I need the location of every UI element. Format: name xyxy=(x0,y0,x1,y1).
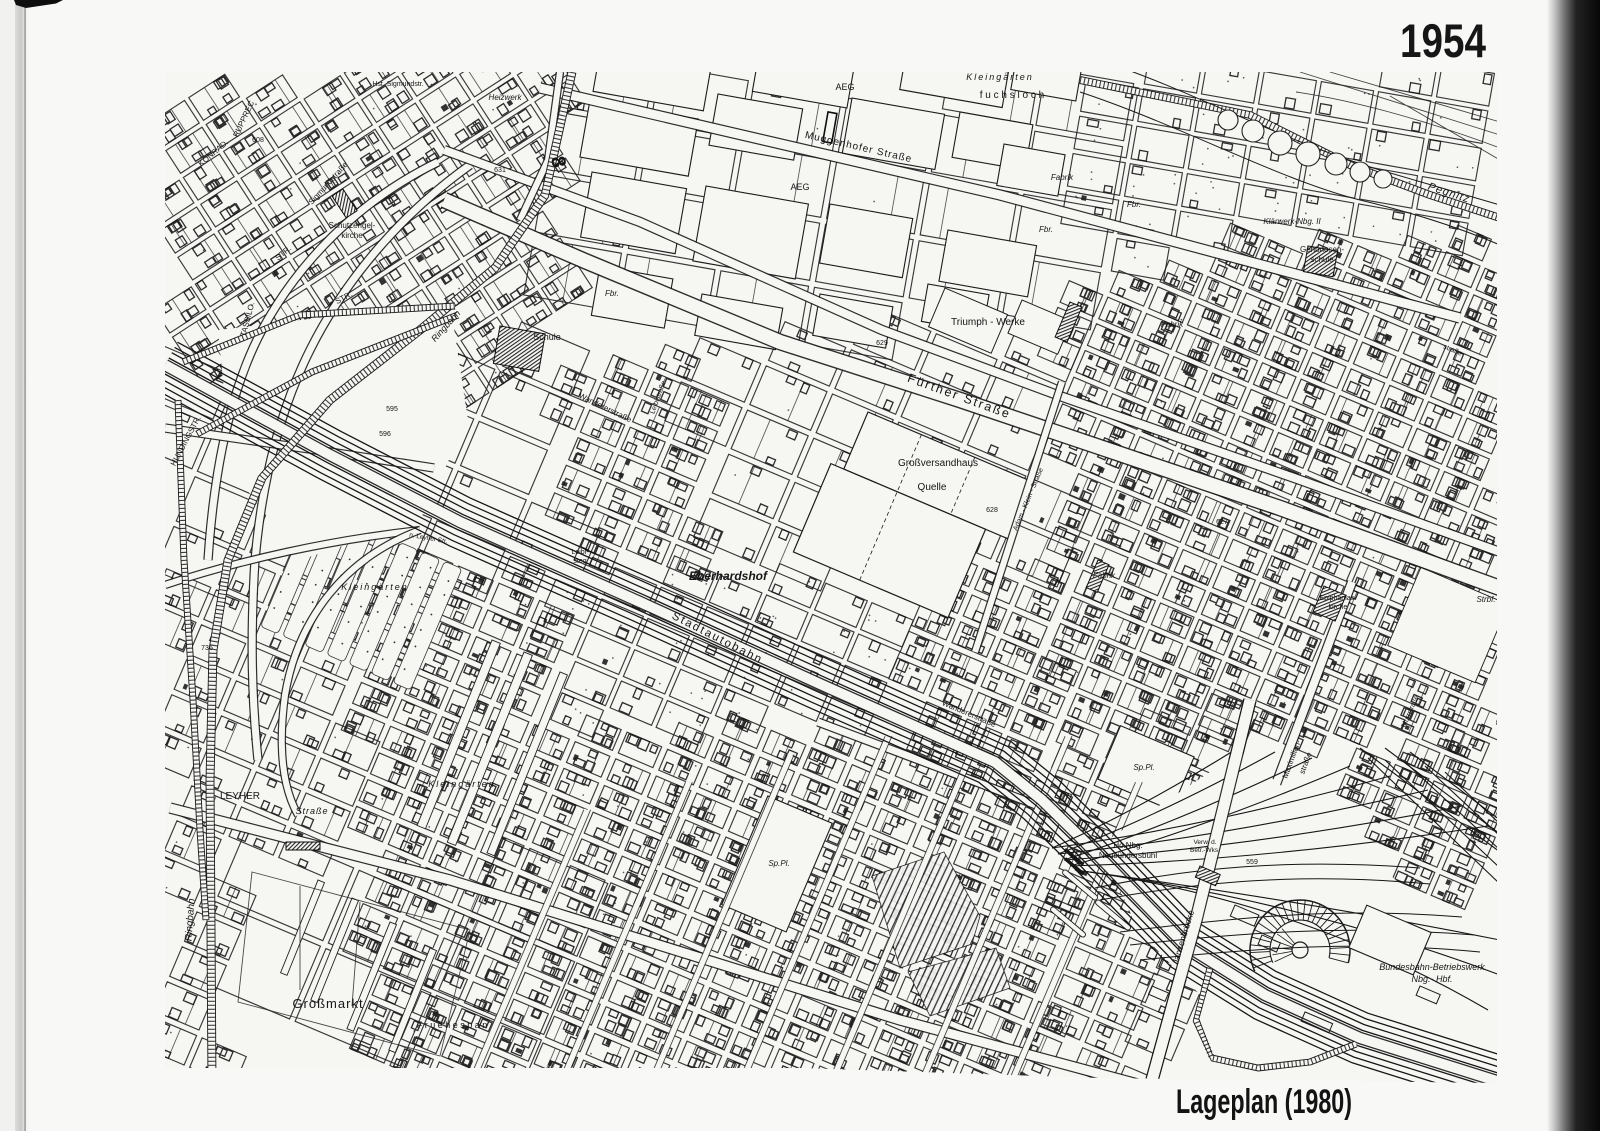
svg-text:628: 628 xyxy=(986,507,998,514)
svg-text:Triumph - Werke: Triumph - Werke xyxy=(951,317,1025,328)
svg-text:Großmarkt: Großmarkt xyxy=(292,996,363,1011)
svg-text:f u c h s l o c h: f u c h s l o c h xyxy=(980,90,1044,101)
svg-text:595: 595 xyxy=(386,406,398,413)
svg-text:Sp.Pl.: Sp.Pl. xyxy=(768,859,789,868)
svg-text:Eberhardshof: Eberhardshof xyxy=(689,569,768,583)
svg-text:1954: 1954 xyxy=(1400,14,1486,67)
svg-text:Lageplan (1980): Lageplan (1980) xyxy=(1176,1083,1352,1121)
svg-text:Straße: Straße xyxy=(295,806,328,816)
svg-text:kirche: kirche xyxy=(1329,604,1348,611)
svg-text:Klärwerk-Nbg. II: Klärwerk-Nbg. II xyxy=(1263,217,1321,226)
svg-text:Leibl-: Leibl- xyxy=(571,549,589,556)
svg-text:Hst. Sigmundstr.: Hst. Sigmundstr. xyxy=(372,81,423,88)
svg-text:Schule: Schule xyxy=(533,332,561,342)
svg-text:Heizwerk: Heizwerk xyxy=(489,93,523,102)
svg-text:kirche: kirche xyxy=(341,231,363,240)
svg-text:736: 736 xyxy=(201,645,213,652)
svg-text:Gehörlosen-: Gehörlosen- xyxy=(1300,245,1344,254)
svg-text:Nbg.- Hbf.: Nbg.- Hbf. xyxy=(1411,974,1452,984)
svg-text:Fabrik: Fabrik xyxy=(1093,571,1116,580)
svg-text:AEG: AEG xyxy=(790,182,809,192)
svg-text:Verw. d.: Verw. d. xyxy=(1193,839,1216,846)
svg-text:Kleingärten: Kleingärten xyxy=(428,779,496,789)
svg-text:schule: schule xyxy=(1310,255,1334,264)
svg-text:Bundesbahn-Betriebswerk: Bundesbahn-Betriebswerk xyxy=(1379,962,1485,972)
svg-text:631: 631 xyxy=(494,167,506,174)
svg-text:Epiphanias-: Epiphanias- xyxy=(1320,595,1358,602)
svg-text:627: 627 xyxy=(1216,519,1228,526)
svg-text:Kleingärten: Kleingärten xyxy=(341,582,409,592)
svg-text:Kleingärten: Kleingärten xyxy=(966,72,1034,82)
svg-text:Betr.-Wks.: Betr.-Wks. xyxy=(1190,847,1220,854)
svg-text:LEYHER: LEYHER xyxy=(220,791,260,802)
svg-text:Quelle: Quelle xyxy=(918,482,947,493)
svg-text:Großversandhaus: Großversandhaus xyxy=(898,458,978,469)
svg-text:Fabrik: Fabrik xyxy=(1161,320,1184,329)
svg-text:Sp.Pl.: Sp.Pl. xyxy=(1133,763,1154,772)
svg-text:Ho.Nbg.: Ho.Nbg. xyxy=(1113,841,1142,850)
svg-text:559: 559 xyxy=(1246,859,1258,866)
svg-text:AEG: AEG xyxy=(835,82,854,92)
svg-text:Fabrik: Fabrik xyxy=(1051,173,1074,182)
svg-text:629: 629 xyxy=(876,340,888,347)
svg-text:608: 608 xyxy=(252,137,264,144)
svg-text:Schutzengel-: Schutzengel- xyxy=(329,221,376,230)
svg-text:Strbf.: Strbf. xyxy=(1476,595,1495,604)
svg-text:Neusündersbühl: Neusündersbühl xyxy=(1099,851,1157,860)
svg-text:steg: steg xyxy=(573,558,586,565)
svg-text:Fbr.: Fbr. xyxy=(605,289,619,298)
svg-text:Fbr.: Fbr. xyxy=(1039,225,1053,234)
svg-text:F r u e h e s p a n: F r u e h e s p a n xyxy=(417,1020,488,1030)
svg-text:596: 596 xyxy=(379,431,391,438)
svg-text:Fbr.: Fbr. xyxy=(1127,200,1141,209)
